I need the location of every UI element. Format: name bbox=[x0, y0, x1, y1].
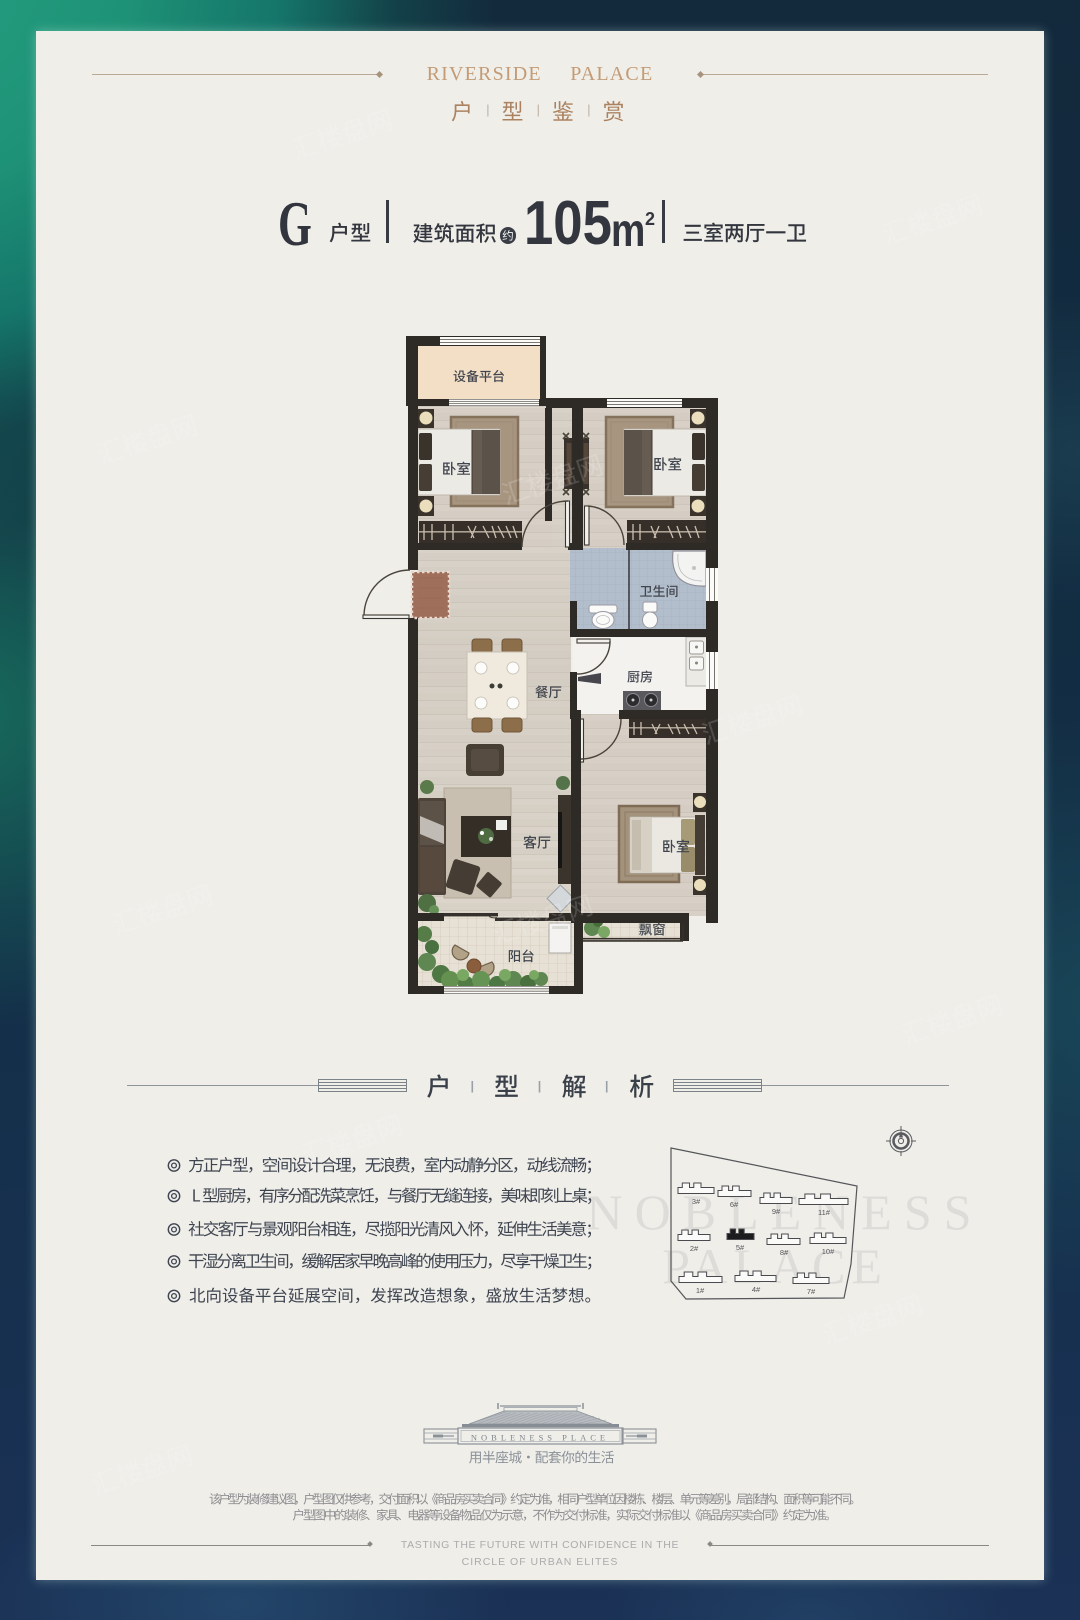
svg-text:10#: 10# bbox=[822, 1247, 835, 1256]
svg-text:6#: 6# bbox=[730, 1200, 739, 1209]
svg-text:1#: 1# bbox=[696, 1286, 705, 1295]
svg-text:2#: 2# bbox=[690, 1244, 699, 1253]
svg-text:9#: 9# bbox=[772, 1207, 781, 1216]
svg-text:7#: 7# bbox=[807, 1287, 816, 1296]
svg-text:5#: 5# bbox=[736, 1243, 745, 1252]
svg-text:4#: 4# bbox=[752, 1285, 761, 1294]
svg-text:3#: 3# bbox=[692, 1197, 701, 1206]
svg-text:8#: 8# bbox=[780, 1248, 789, 1257]
svg-text:11#: 11# bbox=[818, 1208, 831, 1217]
